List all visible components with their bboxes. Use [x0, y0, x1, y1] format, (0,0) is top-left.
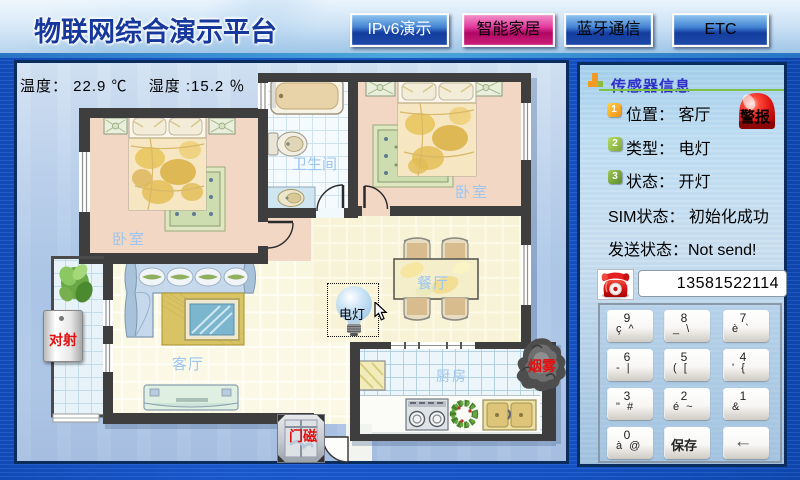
svg-text:厨房: 厨房 [436, 368, 468, 384]
svg-text:卫生间: 卫生间 [292, 156, 337, 173]
svg-text:卧室: 卧室 [112, 231, 146, 248]
svg-text:客厅: 客厅 [172, 356, 204, 373]
svg-text:餐厅: 餐厅 [417, 275, 449, 292]
svg-text:卧室: 卧室 [455, 184, 489, 201]
